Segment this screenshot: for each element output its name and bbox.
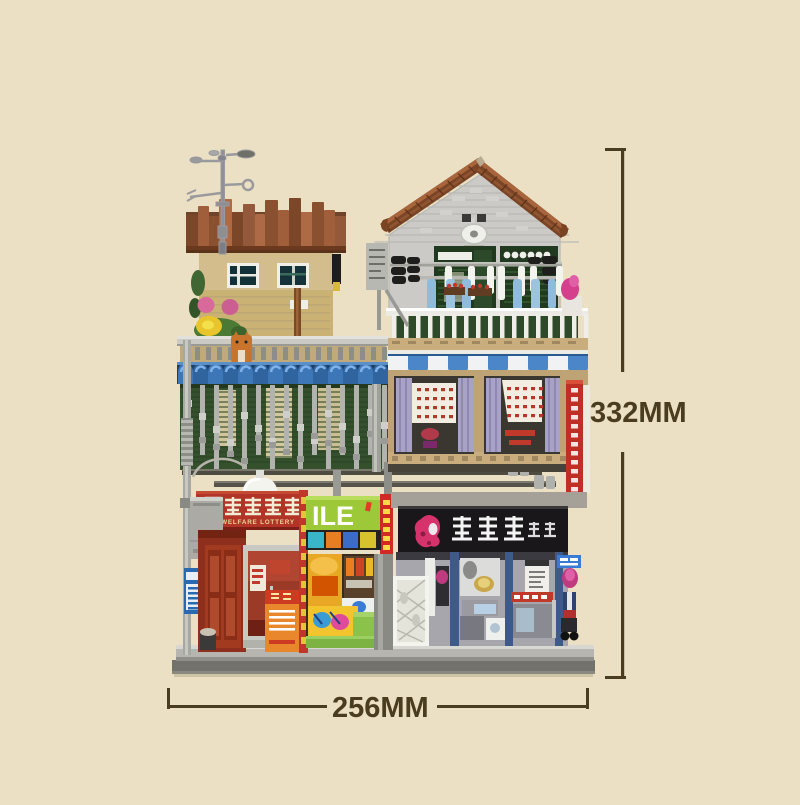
svg-text:ILE: ILE — [312, 501, 354, 531]
svg-text:256MM: 256MM — [332, 692, 429, 724]
svg-text:WELFARE LOTTERY: WELFARE LOTTERY — [221, 519, 295, 526]
svg-text:332MM: 332MM — [590, 397, 687, 429]
